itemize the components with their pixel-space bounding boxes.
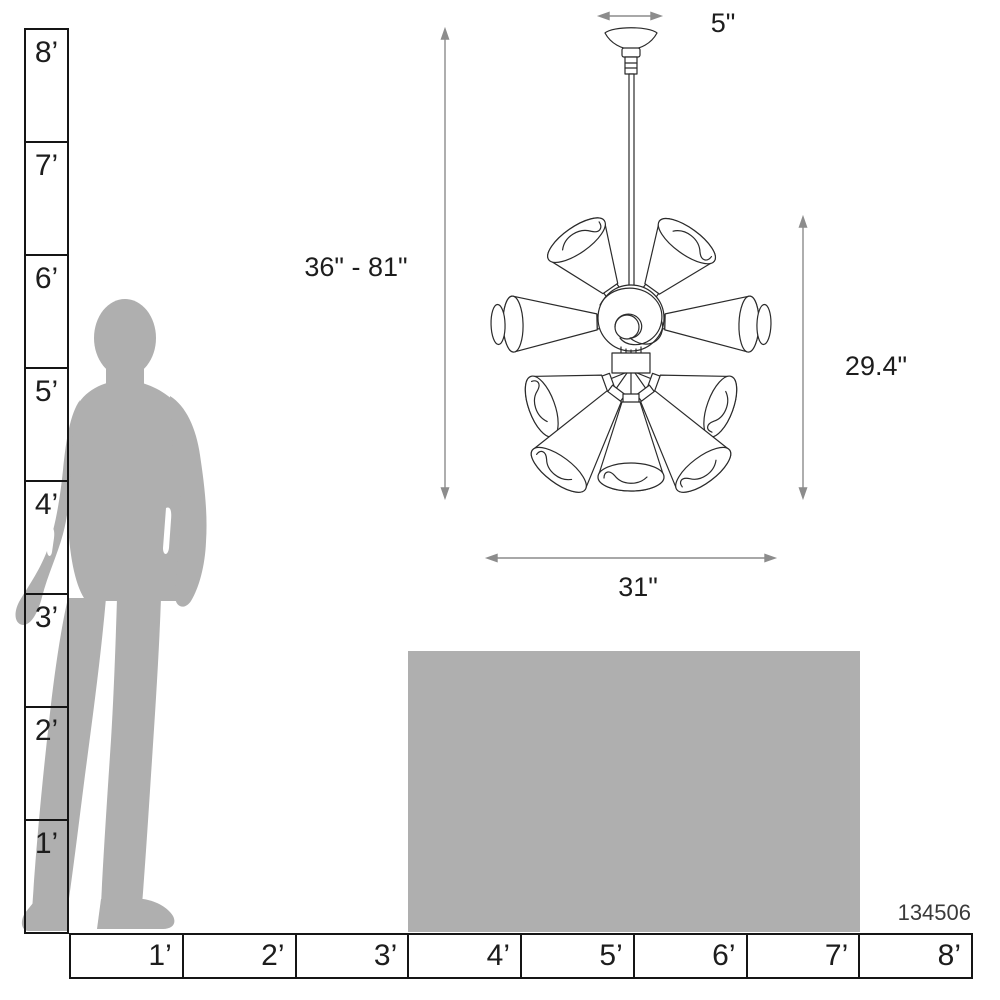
dimension-diagram: 8’ 7’ 6’ 5’ 4’ 3’ 2’ 1’ 1’ 2’ 3’ 4’ 5’ 6… <box>0 0 1000 1000</box>
vertical-ruler: 8’ 7’ 6’ 5’ 4’ 3’ 2’ 1’ <box>24 28 69 934</box>
canopy-nut <box>622 48 640 57</box>
diagram-canvas <box>0 0 1000 1000</box>
vertical-ruler-label: 8’ <box>35 38 58 141</box>
horizontal-ruler-label: 2’ <box>261 941 284 971</box>
fixture-height-label: 29.4" <box>845 351 907 382</box>
horizontal-ruler-cell: 1’ <box>71 935 184 977</box>
horizontal-ruler-label: 8’ <box>938 941 961 971</box>
horizontal-ruler-cell: 3’ <box>297 935 410 977</box>
vertical-ruler-cell: 3’ <box>26 595 67 708</box>
downrod <box>629 74 634 290</box>
canopy-width-arrow <box>599 13 661 20</box>
vertical-ruler-cell: 4’ <box>26 482 67 595</box>
vertical-ruler-cell: 5’ <box>26 369 67 482</box>
fixture-width-label: 31" <box>618 572 658 603</box>
person-right-leg <box>101 598 161 905</box>
horizontal-ruler-label: 5’ <box>599 941 622 971</box>
horizontal-ruler-cell: 8’ <box>860 935 971 977</box>
vertical-ruler-label: 5’ <box>35 377 58 480</box>
center-hub <box>612 353 650 373</box>
vertical-ruler-cell: 2’ <box>26 708 67 821</box>
product-code: 134506 <box>898 900 971 926</box>
cone-left <box>490 294 607 353</box>
vertical-ruler-cell: 8’ <box>26 30 67 143</box>
horizontal-ruler-label: 6’ <box>712 941 735 971</box>
cone-right <box>654 294 771 353</box>
horizontal-ruler-cell: 5’ <box>522 935 635 977</box>
horizontal-ruler-cell: 2’ <box>184 935 297 977</box>
table-silhouette <box>408 651 860 932</box>
chandelier-drawing <box>490 28 771 500</box>
horizontal-ruler-label: 3’ <box>374 941 397 971</box>
vertical-ruler-cell: 1’ <box>26 821 67 932</box>
vertical-ruler-label: 3’ <box>35 603 58 706</box>
canopy-width-label: 5" <box>711 8 736 39</box>
horizontal-ruler-label: 7’ <box>825 941 848 971</box>
vertical-ruler-label: 6’ <box>35 264 58 367</box>
fixture-height-arrow <box>800 217 807 498</box>
vertical-ruler-label: 7’ <box>35 151 58 254</box>
vertical-ruler-label: 1’ <box>35 829 58 932</box>
vertical-ruler-label: 2’ <box>35 716 58 819</box>
horizontal-ruler-label: 4’ <box>487 941 510 971</box>
vertical-ruler-cell: 7’ <box>26 143 67 256</box>
person-right-shoe <box>97 899 174 929</box>
vertical-ruler-cell: 6’ <box>26 256 67 369</box>
canopy-collar <box>625 57 637 74</box>
horizontal-ruler: 1’ 2’ 3’ 4’ 5’ 6’ 7’ 8’ <box>69 933 973 979</box>
horizontal-ruler-label: 1’ <box>148 941 171 971</box>
hanging-height-arrow <box>442 29 449 498</box>
horizontal-ruler-cell: 7’ <box>748 935 861 977</box>
fixture-width-arrow <box>487 555 775 562</box>
hanging-height-label: 36" - 81" <box>304 252 407 283</box>
horizontal-ruler-cell: 4’ <box>409 935 522 977</box>
vertical-ruler-label: 4’ <box>35 490 58 593</box>
horizontal-ruler-cell: 6’ <box>635 935 748 977</box>
canopy <box>605 28 657 49</box>
